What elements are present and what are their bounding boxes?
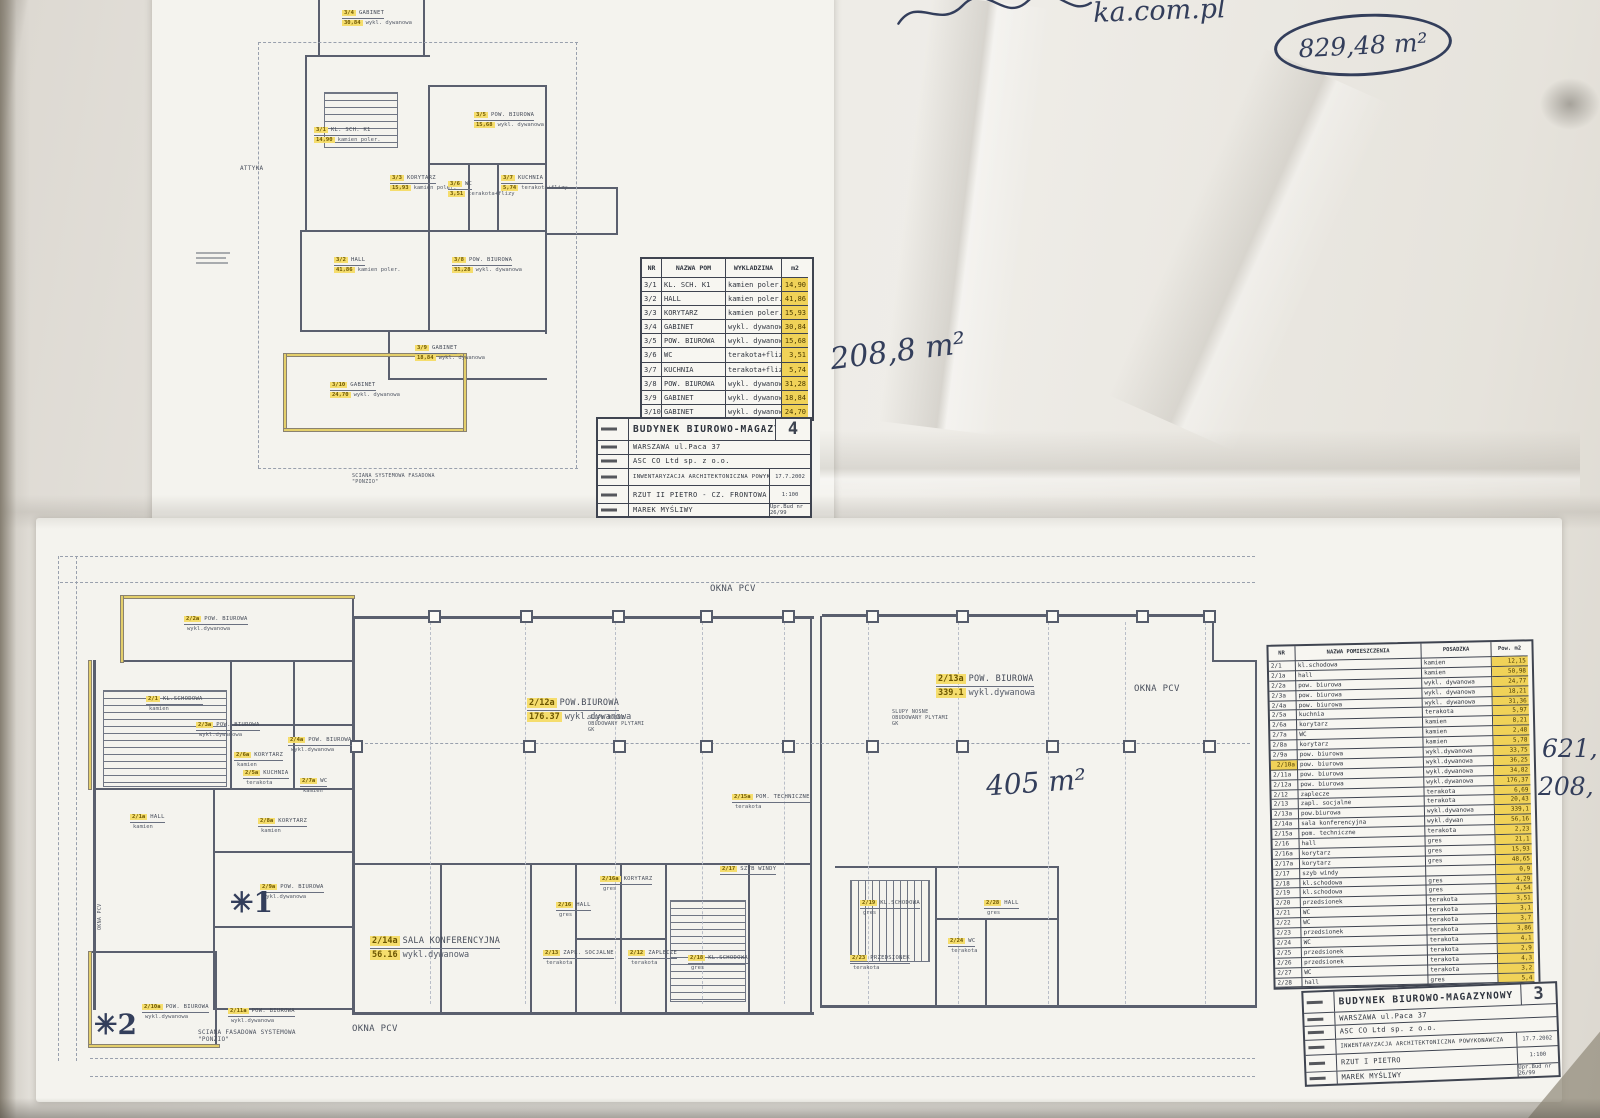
table-cell: 3,51 <box>782 348 808 362</box>
table-cell: 5,74 <box>782 363 808 377</box>
column-mark <box>956 740 969 753</box>
plan-line <box>575 938 665 940</box>
plan-line <box>576 42 577 468</box>
title-block-front: BUDYNEK BIUROWO-MAGAZYNOWY 4 WARSZAWA ul… <box>596 417 812 518</box>
title-block-first-floor: BUDYNEK BIUROWO-MAGAZYNOWY 3 WARSZAWA ul… <box>1301 981 1560 1087</box>
room-label-2-19: 2/19KL.SCHODOWAgres <box>860 900 920 917</box>
room-label-3-5: 3/5POW. BIUROWA15,68wykl. dywanowa <box>474 112 544 129</box>
room-label-2-13a: 2/13aPOW. BIUROWA339.1wykl.dywanowa <box>936 674 1035 698</box>
room-label-2-4a: 2/4aPOW. BIUROWAwykl.dywanowa <box>288 737 352 754</box>
table-cell: 2/18 <box>1273 879 1300 889</box>
table-cell: 3/7 <box>642 363 662 377</box>
author: MAREK MYŚLIWY <box>629 504 769 516</box>
table-cell: wykl. dywanowa <box>726 320 782 334</box>
plan-note: OKNA PCV <box>352 1024 422 1034</box>
table-cell: 2/23 <box>1274 928 1301 938</box>
column-mark <box>1046 610 1059 623</box>
plan-line <box>300 330 547 332</box>
plan-line <box>258 42 259 468</box>
table-cell: 15,93 <box>782 306 808 320</box>
plan-line <box>76 556 77 1061</box>
address: WARSZAWA ul.Paca 37 <box>629 441 810 454</box>
plan-line <box>985 918 987 1007</box>
scale: 1:100 <box>1517 1047 1559 1064</box>
date: 17.7.2002 <box>1516 1031 1558 1047</box>
plan-line <box>665 865 667 1014</box>
plan-line <box>93 660 96 1010</box>
table-row: 3/2HALLkamien poler.41,86 <box>642 292 812 306</box>
handwritten-margin-value: 621, <box>1542 734 1598 763</box>
table-cell: 2/26 <box>1275 958 1302 968</box>
table-cell: 2/12 <box>1271 790 1298 800</box>
room-label-2-15a: 2/15aPOM. TECHNICZNEterakota <box>732 794 810 811</box>
table-cell: 2/4a <box>1270 701 1297 711</box>
table-cell: KUCHNIA <box>662 363 726 377</box>
plan-line <box>388 378 547 380</box>
table-cell: 30,84 <box>782 320 808 334</box>
column-header: NR <box>1268 646 1295 662</box>
room-label-2-2a: 2/2aPOW. BIUROWAwykl.dywanowa <box>184 616 248 633</box>
table-cell: 41,86 <box>782 292 808 306</box>
plan-line <box>120 595 355 599</box>
room-label-2-17: 2/17SZYB WINDY <box>720 866 776 875</box>
table-row: 3/8POW. BIUROWAwykl. dywanowa31,28 <box>642 377 812 391</box>
table-cell: hall <box>1302 975 1428 988</box>
plan-line <box>530 865 532 1014</box>
room-label-2-12: 2/12ZAPLECZEterakota <box>628 950 677 967</box>
plan-note: OKNA PCV <box>98 890 104 930</box>
plan-line <box>810 616 812 1015</box>
room-label-3-7: 3/7KUCHNIA5,74terakota+flizy <box>501 175 568 192</box>
plan-line <box>1205 622 1206 1004</box>
plan-line <box>60 582 1255 583</box>
table-cell: 2/19 <box>1274 889 1301 899</box>
table-row: 3/4GABINETwykl. dywanowa30,84 <box>642 320 812 334</box>
plan-line <box>935 866 937 1007</box>
table-cell: POW. BIUROWA <box>662 377 726 391</box>
room-label-2-11a: 2/11aPOW. BIUROWAwykl.dywanowa <box>228 1008 295 1025</box>
plan-line <box>463 353 467 432</box>
plan-line <box>820 616 822 1008</box>
table-cell: KL. SCH. K1 <box>662 278 726 292</box>
room-label-2-28: 2/28HALLgres <box>984 900 1019 917</box>
table-cell: 2/22 <box>1274 918 1301 928</box>
plan-note: SCIANA SYSTEMOWA FASADOWA "PONZIO" <box>352 474 462 486</box>
room-label-2-16: 2/16HALLgres <box>556 902 591 919</box>
drawing-name: RZUT II PIETRO - CZ. FRONTOWA <box>629 486 769 503</box>
plan-line <box>547 233 618 235</box>
column-mark <box>1046 740 1059 753</box>
plan-line <box>258 42 578 43</box>
table-cell: 2/2a <box>1269 681 1296 691</box>
room-label-3-8: 3/8POW. BIUROWA31,28wykl. dywanowa <box>452 257 522 274</box>
handwritten-star-1: ✳1 <box>230 886 273 919</box>
plan-line <box>283 428 467 432</box>
license-number: Upr.Bud nr 26/99 <box>769 504 810 516</box>
table-cell: 2/9a <box>1271 750 1298 760</box>
plan-line <box>428 163 547 165</box>
investor: ASC CO Ltd sp. z o.o. <box>629 455 810 469</box>
plan-line <box>318 0 320 57</box>
plan-line <box>58 556 59 1061</box>
plan-line <box>352 616 355 1015</box>
table-cell: kamien poler. <box>726 292 782 306</box>
table-cell: wykl. dywanowa <box>726 391 782 405</box>
table-cell: 2/8a <box>1270 740 1297 750</box>
room-label-2-6a: 2/6aKORYTARZkamien <box>234 752 283 769</box>
column-mark <box>1203 740 1216 753</box>
column-mark <box>700 740 713 753</box>
plan-line <box>784 622 785 1004</box>
plan-line <box>91 951 217 953</box>
plan-line <box>545 85 547 334</box>
plan-line <box>300 230 302 332</box>
plan-line <box>1212 660 1257 662</box>
table-cell: wykl. dywanowa <box>726 377 782 391</box>
room-label-3-1: 3/1KL. SCH. K114,90kamien poler. <box>314 127 381 144</box>
column-mark <box>866 610 879 623</box>
room-label-2-24: 2/24WCterakota <box>948 938 978 955</box>
room-label-2-7a: 2/7aWCkamien <box>300 778 327 795</box>
table-cell: KORYTARZ <box>662 306 726 320</box>
plan-line <box>616 187 618 235</box>
table-row: 3/3KORYTARZkamien poler.15,93 <box>642 306 812 320</box>
table-cell: 2/16 <box>1272 839 1299 849</box>
room-label-2-10a: 2/10aPOW. BIUROWAwykl.dywanowa <box>142 1004 209 1021</box>
plan-line <box>90 1076 1255 1077</box>
room-label-2-23: 2/23PRZEDSIONEKterakota <box>850 955 910 972</box>
table-cell: 2/27 <box>1275 968 1302 978</box>
plan-note: SLUPY NOSNE OBUDOWANY PLYTAMI GK <box>588 716 650 733</box>
table-row: 3/7KUCHNIAterakota+flizy5,74 <box>642 363 812 377</box>
plan-note: SCIANA FASADOWA SYSTEMOWA "PONZIO" <box>198 1030 328 1044</box>
table-row: 3/6WCterakota+flizy3,51 <box>642 348 812 362</box>
table-row: 3/5POW. BIUROWAwykl. dywanowa15,68 <box>642 334 812 348</box>
room-label-2-1: 2/1KL.SCHODOWAkamien <box>146 696 203 713</box>
column-header: WYKLADZINA <box>726 259 782 278</box>
plan-line <box>423 0 425 57</box>
plan-line <box>213 851 355 853</box>
plan-line <box>213 926 355 928</box>
plan-note: SLUPY NOSNE OBUDOWANY PLYTAMI GK <box>892 710 954 727</box>
room-label-2-3a: 2/3aPOW. BIUROWAwykl.dywanowa <box>196 722 260 739</box>
room-table-first-floor: NRNAZWA POMIESZCZENIAPOSADZKAPow. m22/1k… <box>1266 639 1540 990</box>
table-cell: GABINET <box>662 320 726 334</box>
room-label-2-8a: 2/8aKORYTARZkamien <box>258 818 307 835</box>
plan-line <box>1057 866 1059 1007</box>
plan-line <box>615 622 616 1004</box>
plan-line <box>935 918 1057 920</box>
title-block-label <box>598 419 629 440</box>
plan-line <box>868 622 869 1004</box>
table-cell: 2/17 <box>1273 869 1300 879</box>
plan-line <box>497 165 499 232</box>
plan-line <box>822 614 1214 617</box>
license-number: Upr.Bud nr 26/99 <box>1517 1063 1558 1077</box>
scale: 1:100 <box>769 486 810 503</box>
plan-line <box>352 616 814 619</box>
scanned-floor-plan-photo: { "handwritten": { "top_note_fragment": … <box>0 0 1600 1118</box>
table-cell: 2/5a <box>1270 711 1297 721</box>
plan-line <box>468 165 470 232</box>
room-label-3-3: 3/3KORYTARZ15,93kamien poler. <box>390 175 457 192</box>
plan-line <box>702 622 703 1004</box>
table-cell: 2/14a <box>1272 819 1299 829</box>
table-cell: 2/13 <box>1272 800 1299 810</box>
plan-line <box>748 865 750 1014</box>
plan-line <box>120 660 354 662</box>
plan-line <box>428 85 430 232</box>
plan-line <box>670 900 746 1002</box>
table-cell: 3/9 <box>642 391 662 405</box>
illegible-note <box>196 252 230 254</box>
column-mark <box>428 610 441 623</box>
table-cell: 3/3 <box>642 306 662 320</box>
room-label-2-5a: 2/5aKUCHNIAterakota <box>243 770 289 787</box>
room-label-3-10: 3/10GABINET24,70wykl. dywanowa <box>330 382 400 399</box>
plan-line <box>1125 622 1126 1004</box>
table-cell: 2/12a <box>1271 780 1298 790</box>
column-header: NAZWA POM <box>662 259 726 278</box>
plan-line <box>60 556 1255 557</box>
column-header: NR <box>642 259 662 278</box>
room-table-front: NRNAZWA POMWYKLADZINAm23/1KL. SCH. K1kam… <box>640 257 814 421</box>
plan-line <box>428 85 547 87</box>
table-cell: 2/21 <box>1274 908 1301 918</box>
table-cell: kamien poler. <box>726 278 782 292</box>
table-cell: 31,28 <box>782 377 808 391</box>
plan-line <box>305 55 307 232</box>
column-mark <box>956 610 969 623</box>
room-label-2-1a: 2/1aHALLkamien <box>130 814 165 831</box>
plan-line <box>305 55 430 57</box>
table-cell: 2/13a <box>1272 810 1299 820</box>
table-cell: 2/7a <box>1270 730 1297 740</box>
table-cell: 2/1a <box>1269 671 1296 681</box>
date: 17.7.2002 <box>769 469 810 485</box>
table-cell: wykl. dywanowa <box>726 334 782 348</box>
column-mark <box>612 610 625 623</box>
room-label-3-9: 3/9GABINET18,84wykl. dywanowa <box>415 345 485 362</box>
plan-line <box>850 880 930 962</box>
table-cell: 2/20 <box>1274 899 1301 909</box>
table-cell: 3/6 <box>642 348 662 362</box>
sheet-number: 4 <box>775 419 810 440</box>
column-mark <box>782 610 795 623</box>
table-cell: 3/8 <box>642 377 662 391</box>
plan-line <box>525 622 526 1004</box>
column-mark <box>866 740 879 753</box>
column-header: POSADZKA <box>1421 642 1491 658</box>
plan-line <box>88 951 92 1046</box>
subject: INWENTARYZACJA ARCHITEKTONICZNA POWYKONA… <box>629 469 769 485</box>
plan-note: OKNA PCV <box>710 584 780 594</box>
plan-note: ATTYKA <box>240 166 280 173</box>
table-cell: 2/11a <box>1271 770 1298 780</box>
table-cell: 2/1 <box>1269 661 1296 671</box>
plan-line <box>1048 622 1049 1004</box>
table-cell: kamien poler. <box>726 306 782 320</box>
table-cell: 2/16a <box>1273 849 1300 859</box>
table-cell: 2/3a <box>1269 691 1296 701</box>
room-label-3-4: 3/4GABINET30,84wykl. dywanowa <box>342 10 412 27</box>
table-cell: 2/6a <box>1270 721 1297 731</box>
column-mark <box>523 740 536 753</box>
table-cell: 3/1 <box>642 278 662 292</box>
table-row: 3/1KL. SCH. K1kamien poler.14,90 <box>642 278 812 292</box>
table-cell: 3/2 <box>642 292 662 306</box>
table-cell: 2/25 <box>1275 948 1302 958</box>
table-cell: 18,84 <box>782 391 808 405</box>
column-mark <box>1136 610 1149 623</box>
room-label-2-13: 2/13ZAPL. SOCJALNEterakota <box>543 950 614 967</box>
column-mark <box>613 740 626 753</box>
table-cell: GABINET <box>662 391 726 405</box>
table-cell: WC <box>662 348 726 362</box>
sheet-number: 3 <box>1520 983 1556 1004</box>
plan-line <box>90 1058 1255 1059</box>
table-cell: 3/4 <box>642 320 662 334</box>
column-mark <box>520 610 533 623</box>
illegible-note <box>196 262 228 264</box>
plan-line <box>120 595 124 663</box>
plan-line <box>283 353 287 432</box>
room-label-2-16a: 2/16aKORYTARZgres <box>600 876 652 893</box>
plan-line <box>352 863 812 865</box>
plan-line <box>360 743 1250 744</box>
plan-line <box>352 1012 814 1015</box>
column-header: m2 <box>782 259 808 278</box>
table-header-row: NRNAZWA POMWYKLADZINAm2 <box>642 259 812 278</box>
illegible-note <box>196 257 226 259</box>
table-cell: 15,68 <box>782 334 808 348</box>
plan-note: OKNA PCV <box>1134 684 1204 694</box>
plan-line <box>88 1044 220 1048</box>
plan-line <box>822 1005 1257 1008</box>
room-label-2-14a: 2/14aSALA KONFERENCYJNA56.16wykl.dywanow… <box>370 936 500 960</box>
building-title: BUDYNEK BIUROWO-MAGAZYNOWY <box>629 419 775 440</box>
table-cell: POW. BIUROWA <box>662 334 726 348</box>
table-cell: terakota+flizy <box>726 348 782 362</box>
handwritten-area-right-wing: 405 m² <box>985 763 1087 803</box>
table-cell: 3/5 <box>642 334 662 348</box>
column-mark <box>782 740 795 753</box>
plan-line <box>258 468 578 469</box>
column-mark <box>1123 740 1136 753</box>
table-cell: 14,90 <box>782 278 808 292</box>
handwritten-margin-value: 208, <box>1538 772 1594 801</box>
plan-line <box>88 660 92 790</box>
table-cell: 2/15a <box>1272 829 1299 839</box>
plan-line <box>428 232 430 332</box>
table-cell: 2/24 <box>1275 938 1302 948</box>
handwritten-star-2: ✳2 <box>94 1008 137 1041</box>
column-mark <box>1203 610 1216 623</box>
table-cell: terakota+flizy <box>726 363 782 377</box>
table-cell: 2/17a <box>1273 859 1300 869</box>
table-cell: 2/28 <box>1275 978 1302 988</box>
table-row: 3/9GABINETwykl. dywanowa18,84 <box>642 391 812 405</box>
plan-line <box>300 230 547 232</box>
plan-line <box>1255 660 1257 1008</box>
table-cell: HALL <box>662 292 726 306</box>
room-label-2-18: 2/18KL.SCHODOWAgres <box>688 955 748 972</box>
table-cell: 2/10a <box>1271 760 1298 770</box>
column-header: Pow. m2 <box>1491 641 1527 657</box>
column-mark <box>700 610 713 623</box>
room-label-3-2: 3/2HALL41,86kamien poler. <box>334 257 401 274</box>
